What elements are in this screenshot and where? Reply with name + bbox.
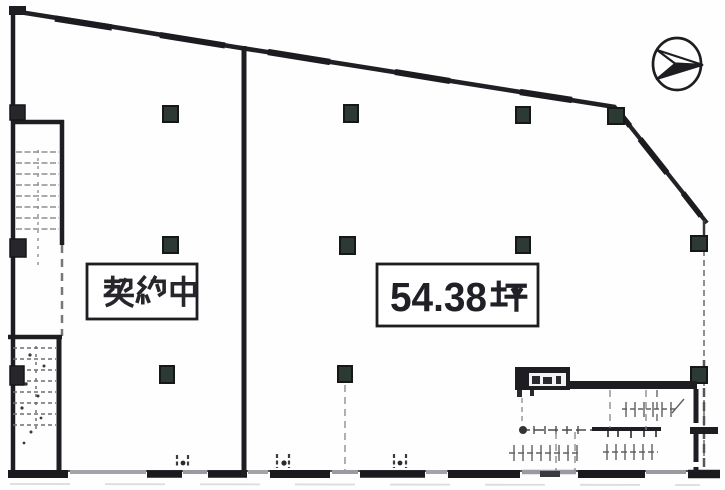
svg-text:54.38: 54.38 xyxy=(390,274,487,320)
